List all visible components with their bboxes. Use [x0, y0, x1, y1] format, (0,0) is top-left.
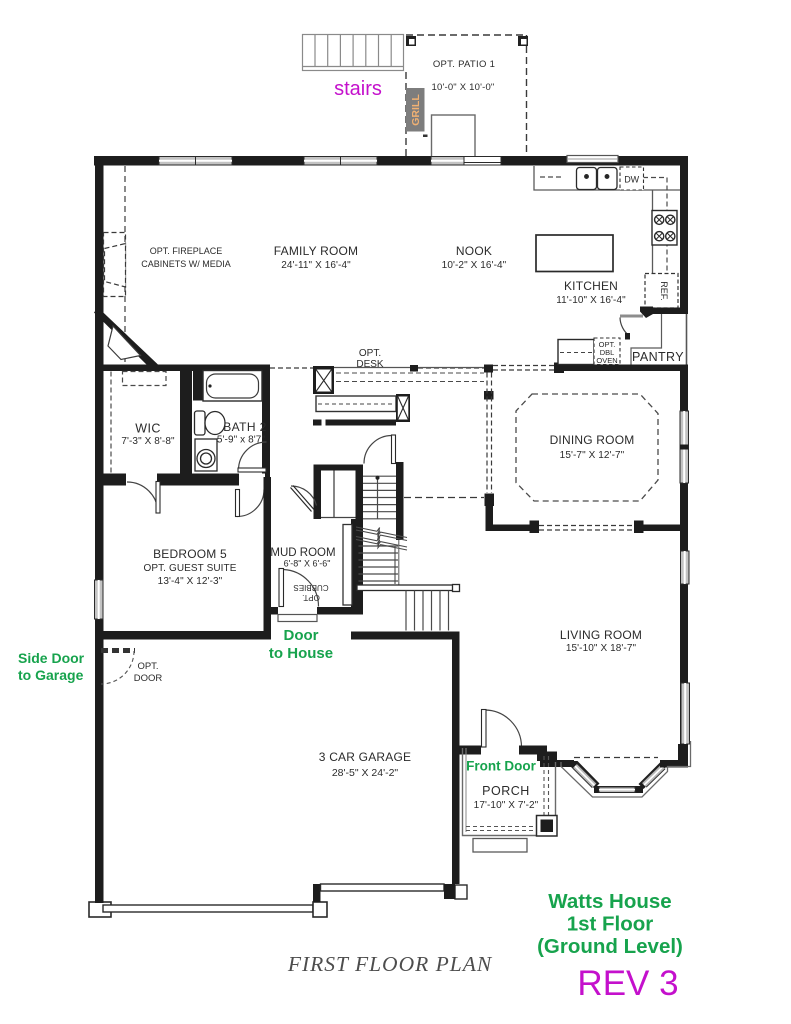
svg-text:BEDROOM 5: BEDROOM 5 — [153, 547, 227, 561]
svg-text:NOOK: NOOK — [456, 244, 492, 258]
svg-text:LIVING ROOM: LIVING ROOM — [560, 628, 642, 642]
svg-text:(Ground Level): (Ground Level) — [537, 935, 683, 958]
svg-text:BATH 2: BATH 2 — [223, 420, 267, 434]
svg-text:Side Door: Side Door — [18, 650, 85, 666]
svg-text:OPT. PATIO 1: OPT. PATIO 1 — [433, 59, 495, 70]
svg-text:to Garage: to Garage — [18, 667, 84, 683]
svg-text:13'-4" X 12'-3": 13'-4" X 12'-3" — [158, 576, 223, 587]
svg-text:KITCHEN: KITCHEN — [564, 279, 618, 293]
svg-text:OVEN: OVEN — [596, 356, 617, 365]
svg-text:Door: Door — [284, 627, 319, 644]
svg-text:MUD ROOM: MUD ROOM — [270, 547, 335, 559]
svg-text:5'-9" x 8'7": 5'-9" x 8'7" — [217, 435, 266, 446]
svg-text:Watts House: Watts House — [548, 890, 671, 913]
svg-text:GRILL: GRILL — [410, 94, 422, 126]
svg-text:FIRST FLOOR PLAN: FIRST FLOOR PLAN — [287, 952, 493, 976]
svg-text:1st Floor: 1st Floor — [567, 913, 654, 936]
svg-text:PANTRY: PANTRY — [632, 350, 684, 364]
svg-text:DOOR: DOOR — [134, 673, 163, 684]
svg-text:OPT.: OPT. — [137, 661, 158, 672]
svg-text:DINING ROOM: DINING ROOM — [550, 433, 635, 447]
svg-text:6'-8" X 6'-6": 6'-8" X 6'-6" — [284, 559, 331, 569]
svg-text:28'-5" X 24'-2": 28'-5" X 24'-2" — [332, 767, 399, 779]
svg-text:WIC: WIC — [135, 422, 161, 436]
svg-text:OPT.: OPT. — [359, 348, 381, 359]
svg-text:15'-10" X 18'-7": 15'-10" X 18'-7" — [566, 643, 637, 654]
svg-text:10'-2" X 16'-4": 10'-2" X 16'-4" — [442, 260, 507, 271]
svg-text:REF.: REF. — [659, 281, 669, 301]
svg-text:DW: DW — [624, 175, 639, 185]
svg-text:7'-3" X 8'-8": 7'-3" X 8'-8" — [121, 436, 175, 447]
svg-text:10'-0" X 10'-0": 10'-0" X 10'-0" — [431, 82, 494, 93]
svg-text:24'-11" X 16'-4": 24'-11" X 16'-4" — [281, 260, 351, 271]
svg-text:CABINETS W/ MEDIA: CABINETS W/ MEDIA — [141, 259, 231, 269]
svg-text:to House: to House — [269, 645, 333, 662]
svg-text:stairs: stairs — [334, 78, 382, 100]
svg-text:REV 3: REV 3 — [577, 964, 678, 1003]
svg-text:OPT. GUEST SUITE: OPT. GUEST SUITE — [143, 563, 236, 574]
svg-text:17'-10" X 7'-2": 17'-10" X 7'-2" — [474, 800, 539, 811]
svg-text:Front Door: Front Door — [466, 759, 536, 774]
svg-text:DESK: DESK — [356, 359, 384, 370]
svg-text:15'-7" X 12'-7": 15'-7" X 12'-7" — [560, 450, 625, 461]
svg-text:FAMILY ROOM: FAMILY ROOM — [274, 244, 358, 258]
svg-text:3 CAR GARAGE: 3 CAR GARAGE — [319, 750, 411, 764]
svg-text:11'-10" X 16'-4": 11'-10" X 16'-4" — [556, 295, 626, 306]
svg-text:PORCH: PORCH — [482, 784, 530, 798]
svg-text:OPT. FIREPLACE: OPT. FIREPLACE — [150, 246, 223, 256]
